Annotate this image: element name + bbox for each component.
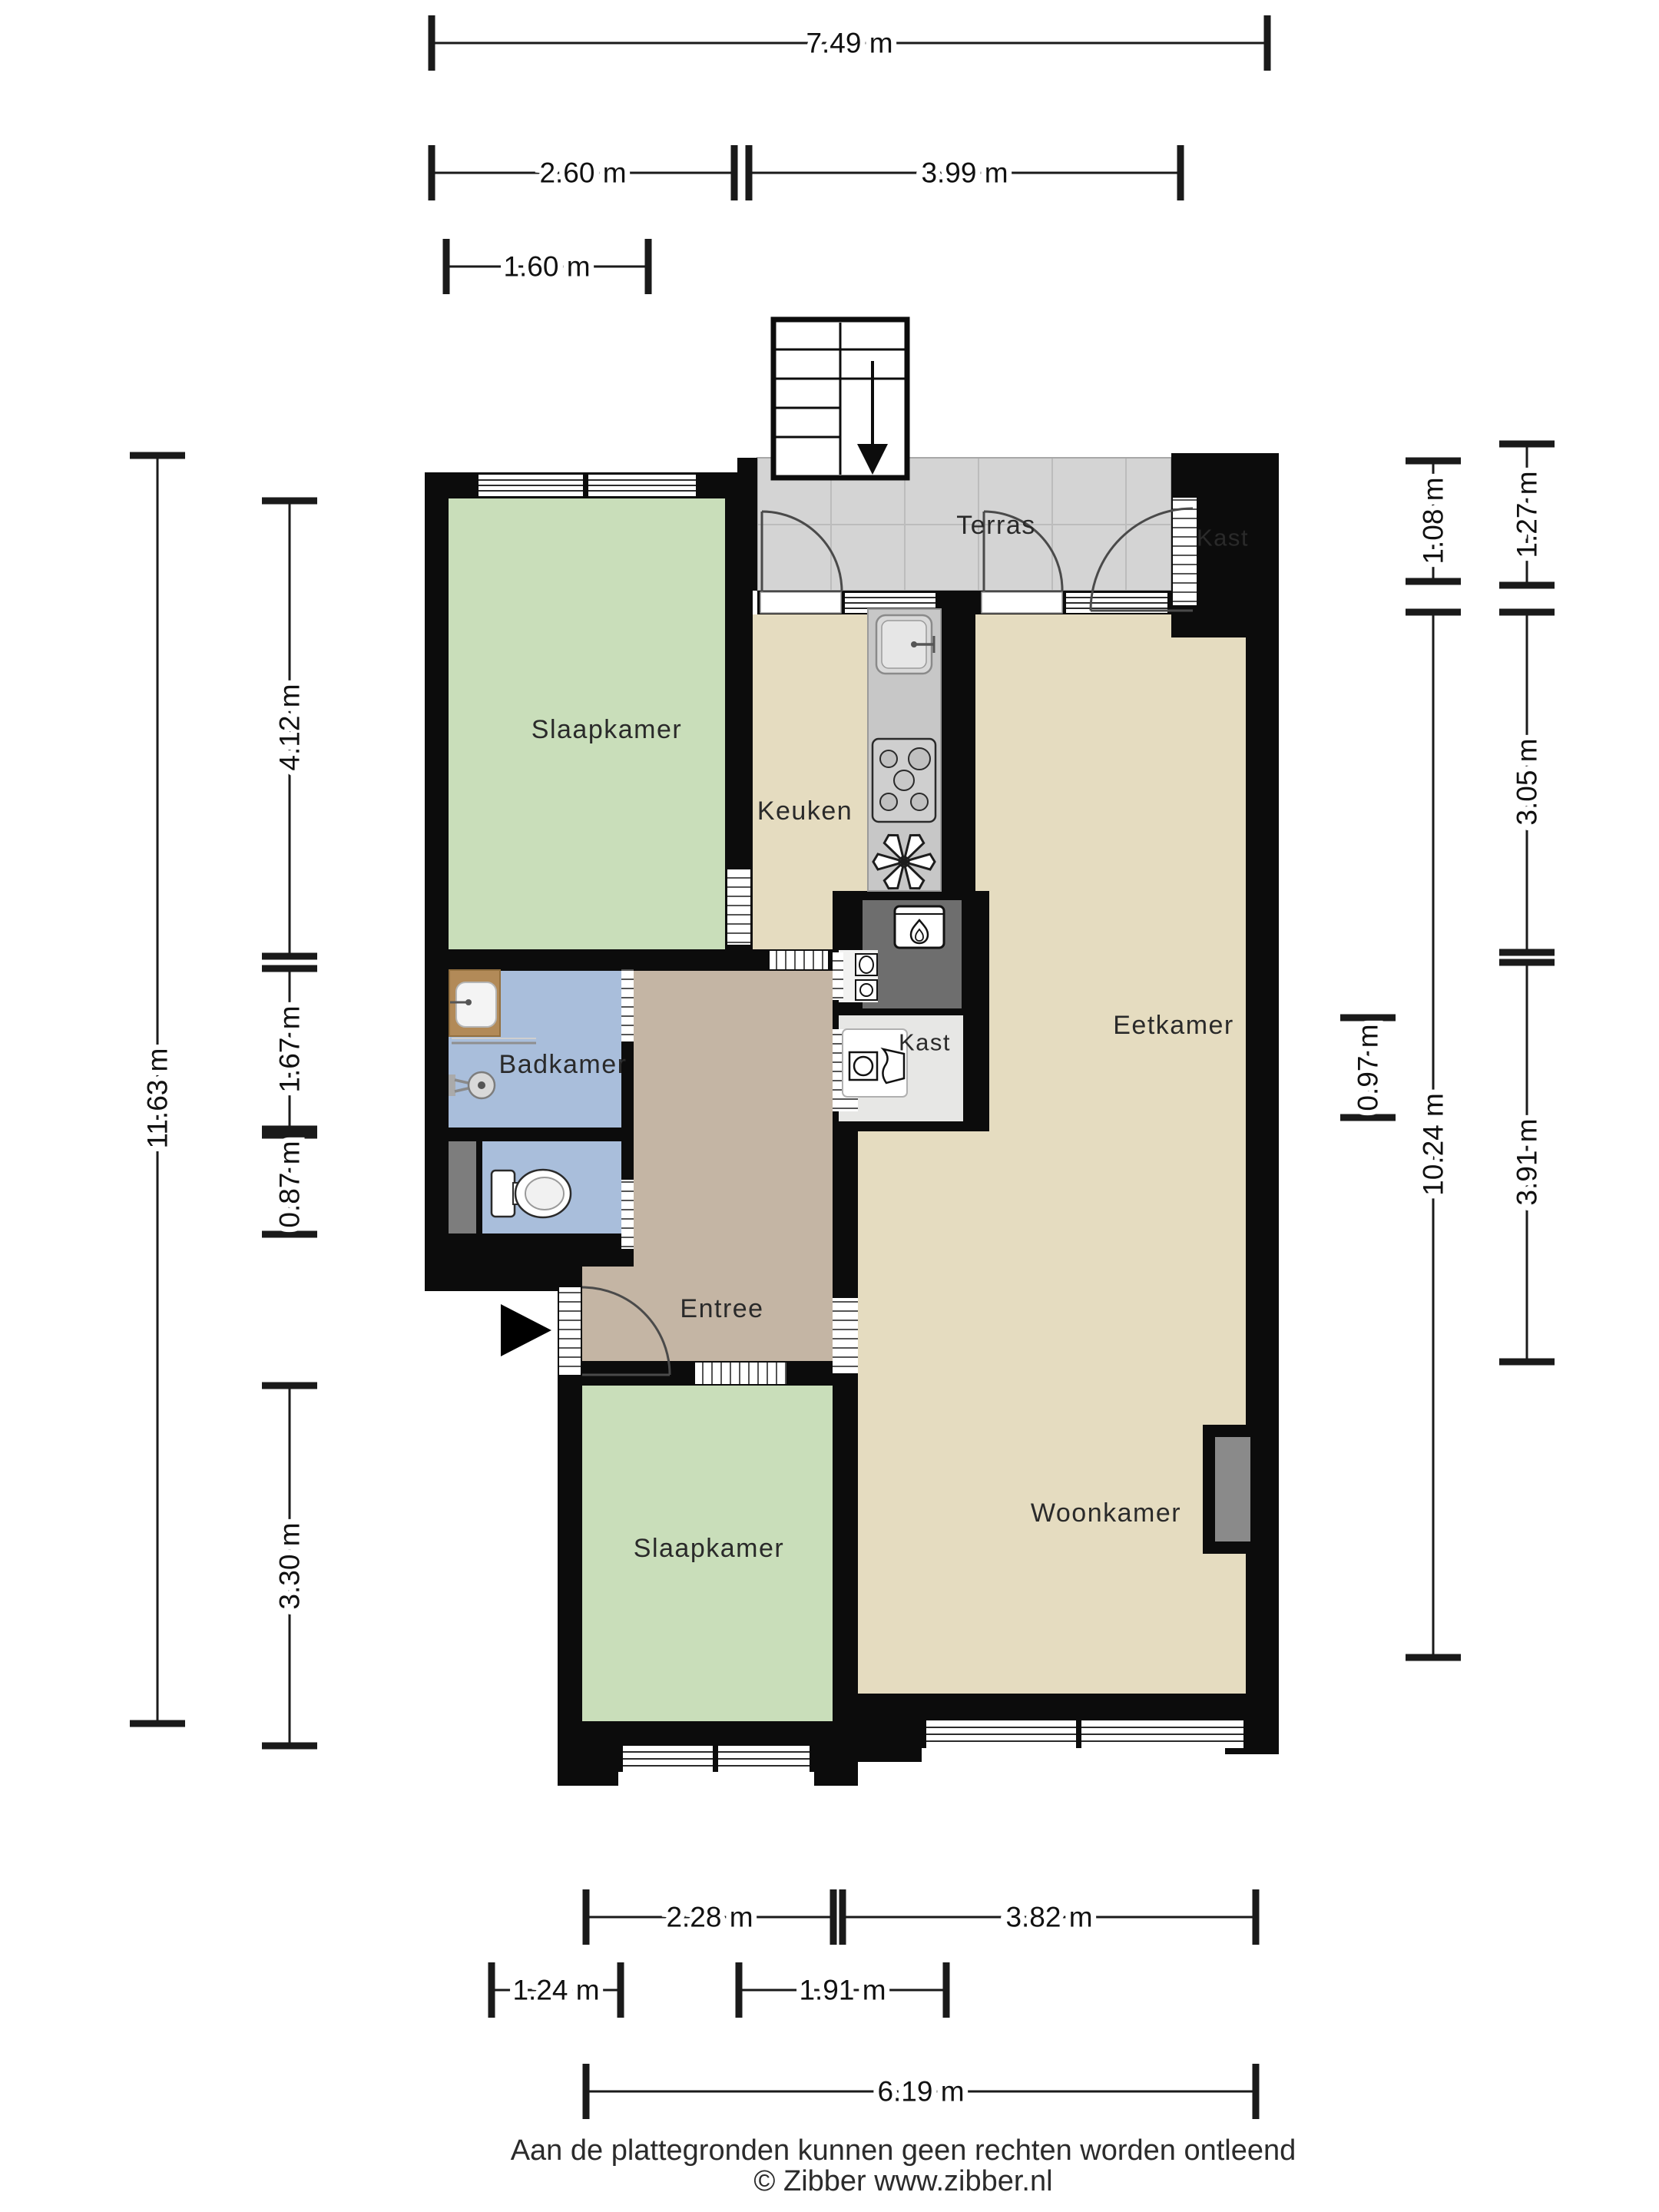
svg-text:0.97 m: 0.97 m: [1353, 1024, 1384, 1111]
label-slaapkamer-top: Slaapkamer: [531, 715, 682, 744]
footer: Aan de plattegronden kunnen geen rechten…: [511, 2134, 1296, 2197]
svg-text:7.49 m: 7.49 m: [806, 28, 892, 59]
sink-icon: [876, 615, 934, 674]
label-slaapkamer-bottom: Slaapkamer: [634, 1534, 784, 1563]
boiler-flame-icon: [895, 906, 944, 948]
footer-disclaimer: Aan de plattegronden kunnen geen rechten…: [511, 2134, 1296, 2167]
svg-text:3.30 m: 3.30 m: [274, 1522, 306, 1609]
label-kast-top: Kast: [1197, 525, 1249, 551]
dim-left-badkamer: 1.67 m: [274, 969, 306, 1129]
toilet-shaft: [449, 1141, 476, 1233]
svg-text:0.87 m: 0.87 m: [274, 1141, 306, 1227]
svg-text:1.08 m: 1.08 m: [1418, 477, 1449, 564]
window-woonkamer-bottom: [922, 1720, 1248, 1748]
dim-right-eetkamer: 3.05 m: [1512, 612, 1543, 952]
door-keuken-entree: [770, 951, 828, 969]
wall-left: [425, 472, 449, 1291]
entrance-arrow-icon: [501, 1304, 551, 1356]
wall-keuken-eetkamer: [941, 591, 975, 900]
door-entree-woonkamer: [833, 1298, 858, 1373]
dim-right-woonkamer: 3.91 m: [1512, 962, 1543, 1362]
radiator-niche: [1203, 1425, 1250, 1554]
dim-left-slaapkamer: 4.12 m: [274, 501, 306, 956]
dim-right-terras: 1.08 m: [1418, 461, 1449, 581]
dim-bottom-slaapkamer2: 2.28 m: [586, 1902, 833, 1933]
stairs: [773, 320, 907, 478]
toilet-shaft-edge: [476, 1141, 482, 1233]
door-slaapkamer-top: [727, 869, 750, 945]
dim-right-total: 10.24 m: [1418, 612, 1449, 1657]
svg-text:11.63 m: 11.63 m: [142, 1048, 174, 1149]
wall-badkamer-toilet: [449, 1128, 621, 1141]
label-terras: Terras: [956, 511, 1035, 540]
dim-right-terras-outer: 1.27 m: [1512, 444, 1543, 585]
stove-icon: [873, 739, 935, 822]
dim-left-slaapkamer2: 3.30 m: [274, 1386, 306, 1746]
kitchen-counter: [868, 609, 941, 892]
footer-credit: © Zibber www.zibber.nl: [753, 2165, 1052, 2197]
wall-terras-left: [737, 458, 757, 591]
svg-text:1.91 m: 1.91 m: [799, 1975, 886, 2006]
dim-bottom-entree: 1.91 m: [739, 1975, 946, 2006]
label-entree: Entree: [680, 1294, 763, 1323]
svg-text:2.60 m: 2.60 m: [539, 157, 626, 189]
wall-corner-s-mid2: [833, 1720, 922, 1762]
svg-text:3.99 m: 3.99 m: [921, 157, 1008, 189]
svg-text:3.05 m: 3.05 m: [1512, 738, 1543, 825]
label-badkamer: Badkamer: [499, 1050, 628, 1079]
svg-text:3.82 m: 3.82 m: [1005, 1902, 1092, 1933]
dim-top-left: 2.60 m: [432, 157, 734, 189]
svg-text:4.12 m: 4.12 m: [274, 684, 306, 770]
label-woonkamer: Woonkamer: [1031, 1498, 1181, 1528]
wall-woonkamer-bottom: [833, 1694, 1279, 1720]
svg-text:1.27 m: 1.27 m: [1512, 471, 1543, 558]
door-toilet: [621, 1180, 634, 1249]
wall-corner-sw: [558, 1746, 618, 1786]
svg-text:1.60 m: 1.60 m: [503, 251, 590, 283]
door-terras-left-gap: [760, 592, 841, 613]
floorplan-page: Slaapkamer Keuken Terras Kast Eetkamer B…: [0, 0, 1659, 2212]
dim-left-toilet: 0.87 m: [274, 1135, 306, 1234]
dim-right-mid: 0.97 m: [1353, 1018, 1384, 1118]
door-entree-slaapkamer: [695, 1363, 786, 1384]
window-slaapkamer-top: [474, 475, 700, 496]
dim-top-right: 3.99 m: [749, 157, 1181, 189]
window-slaapkamer-bottom: [618, 1746, 814, 1772]
wall-toilet-bottom: [449, 1233, 634, 1267]
door-meter-closet: [833, 952, 843, 1000]
floorplan-canvas: Slaapkamer Keuken Terras Kast Eetkamer B…: [0, 0, 1659, 2212]
label-keuken: Keuken: [757, 796, 853, 826]
wall-slaapkamer2-bottom: [558, 1721, 858, 1746]
svg-text:1.67 m: 1.67 m: [274, 1005, 306, 1092]
room-keuken-eetkamer: [753, 614, 1246, 949]
dim-top-inner: 1.60 m: [446, 251, 648, 283]
toilet-icon: [492, 1170, 571, 1217]
wall-right: [1246, 453, 1279, 1720]
label-kast-middle: Kast: [899, 1029, 951, 1056]
room-entree-lower: [582, 1267, 634, 1361]
dim-left-total: 11.63 m: [142, 455, 174, 1724]
shower-mixer-icon: [449, 1072, 495, 1098]
svg-text:10.24 m: 10.24 m: [1418, 1093, 1449, 1196]
door-kast-top: [1173, 498, 1197, 605]
svg-text:3.91 m: 3.91 m: [1512, 1118, 1543, 1205]
svg-text:6.19 m: 6.19 m: [877, 2076, 964, 2108]
svg-text:2.28 m: 2.28 m: [666, 1902, 753, 1933]
label-eetkamer: Eetkamer: [1113, 1011, 1234, 1040]
dim-bottom-door: 1.24 m: [492, 1975, 621, 2006]
dim-bottom-woonkamer: 3.82 m: [843, 1902, 1256, 1933]
door-badkamer: [621, 969, 634, 1041]
dim-top-total: 7.49 m: [432, 28, 1267, 59]
svg-text:1.24 m: 1.24 m: [512, 1975, 599, 2006]
front-door: [559, 1287, 581, 1375]
door-terras-mid-gap: [982, 592, 1062, 613]
bathroom-sink-icon: [450, 982, 496, 1027]
dim-bottom-total: 6.19 m: [586, 2076, 1256, 2108]
washer-icon: [843, 1029, 907, 1097]
